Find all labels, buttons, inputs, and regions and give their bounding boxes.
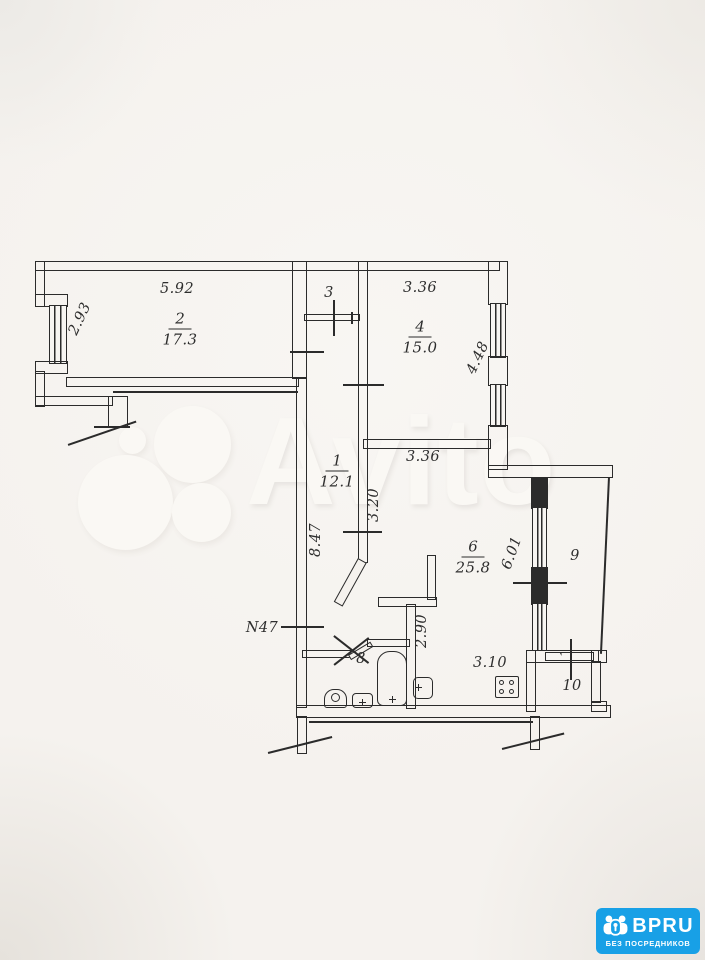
floorplan: 5.92 2.93 3.36 4.48 3.36 3.20 8.47 6.01 … xyxy=(0,0,705,960)
door-opening-mark xyxy=(513,582,567,584)
bpru-logo: BPRU БЕЗ ПОСРЕДНИКОВ xyxy=(596,908,700,954)
room-area: 15.0 xyxy=(403,338,438,357)
wall xyxy=(35,261,500,271)
wall xyxy=(530,716,540,750)
room-4-label: 4 15.0 xyxy=(403,318,438,357)
wall xyxy=(531,477,548,509)
dimension-label: 3.36 xyxy=(403,280,437,296)
floorplan-photo: Avito xyxy=(0,0,705,960)
stove-burner xyxy=(509,680,514,685)
drain-mark xyxy=(359,699,366,706)
door-opening-mark xyxy=(333,300,335,336)
dimension-label: 5.92 xyxy=(160,281,194,297)
wall xyxy=(531,567,548,605)
room-area: 17.3 xyxy=(163,330,198,349)
entrance-door-mark xyxy=(281,626,324,628)
wall xyxy=(488,465,613,478)
dimension-label: 3.36 xyxy=(406,449,440,465)
room-3-label: 3 xyxy=(324,285,334,301)
wall xyxy=(297,716,307,754)
door-opening-mark xyxy=(351,312,353,324)
dimension-label: 8.47 xyxy=(308,523,324,557)
drain-mark xyxy=(415,684,422,691)
logo-brand-text: BPRU xyxy=(632,916,693,936)
wall-joint-mark xyxy=(94,426,130,428)
door-opening-mark xyxy=(343,384,384,386)
stove-symbol xyxy=(495,676,519,698)
wall xyxy=(488,261,508,305)
wall xyxy=(591,661,601,703)
wall-break-mark xyxy=(68,421,137,446)
wall xyxy=(334,558,367,607)
wall-line xyxy=(309,721,533,723)
wall xyxy=(296,377,307,708)
room-8-label: 8 xyxy=(356,651,366,667)
stove-burner xyxy=(509,689,514,694)
wall-line xyxy=(113,391,298,393)
people-lock-icon xyxy=(602,914,629,937)
room-area: 25.8 xyxy=(456,558,491,577)
room-9-label: 9 xyxy=(570,548,580,564)
window xyxy=(532,507,547,569)
apartment-number-label: N47 xyxy=(246,620,278,636)
wall xyxy=(35,396,113,406)
stove-burner xyxy=(499,689,504,694)
dimension-label: 3.20 xyxy=(366,488,382,522)
wall xyxy=(600,477,610,654)
door-opening-mark xyxy=(570,639,572,680)
wall xyxy=(488,425,508,470)
window xyxy=(532,603,547,651)
room-number: 1 xyxy=(325,452,349,472)
wall xyxy=(367,639,410,647)
dimension-label: 2.93 xyxy=(66,300,95,337)
door-opening-mark xyxy=(343,531,382,533)
room-number: 2 xyxy=(168,310,192,330)
wall xyxy=(488,356,508,386)
toilet-symbol xyxy=(331,693,340,702)
door-opening-mark xyxy=(290,351,324,353)
room-10-label: 10 xyxy=(562,678,581,694)
room-area: 12.1 xyxy=(320,472,355,491)
room-number: 4 xyxy=(408,318,432,338)
logo-tagline: БЕЗ ПОСРЕДНИКОВ xyxy=(606,939,691,948)
stove-burner xyxy=(499,680,504,685)
wall xyxy=(427,555,436,600)
window xyxy=(490,303,506,358)
window xyxy=(49,305,67,364)
window xyxy=(490,384,506,427)
wall xyxy=(66,377,299,387)
room-2-label: 2 17.3 xyxy=(163,310,198,349)
wall xyxy=(526,650,536,712)
dimension-label: 2.90 xyxy=(414,614,430,648)
dimension-label: 6.01 xyxy=(499,534,526,571)
room-6-label: 6 25.8 xyxy=(456,538,491,577)
wall xyxy=(363,439,491,449)
drain-mark xyxy=(389,696,396,703)
room-number: 6 xyxy=(461,538,485,558)
room-1-label: 1 12.1 xyxy=(320,452,355,491)
dimension-label: 3.10 xyxy=(473,655,507,671)
